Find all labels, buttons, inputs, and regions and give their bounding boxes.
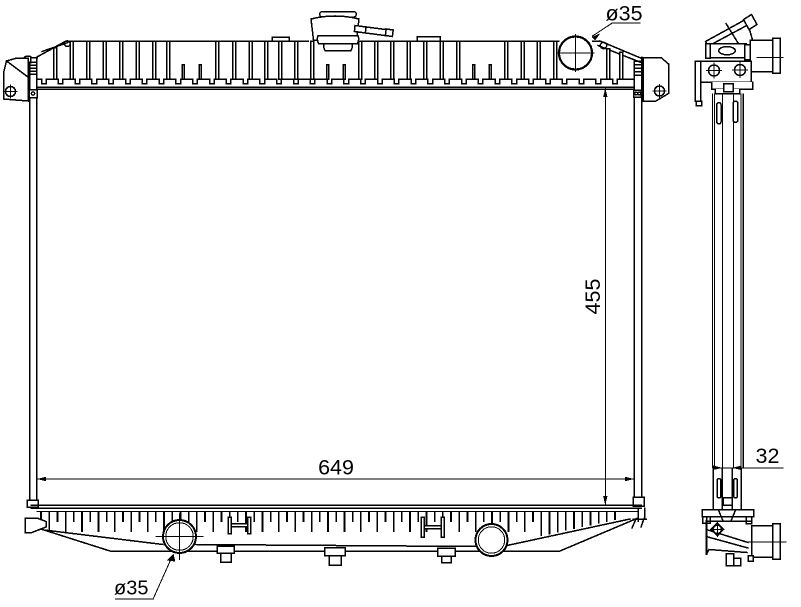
svg-text:32: 32 — [756, 444, 780, 468]
svg-text:455: 455 — [581, 279, 605, 315]
svg-text:649: 649 — [318, 456, 354, 480]
svg-text:ø35: ø35 — [114, 578, 148, 600]
svg-text:ø35: ø35 — [606, 1, 643, 25]
